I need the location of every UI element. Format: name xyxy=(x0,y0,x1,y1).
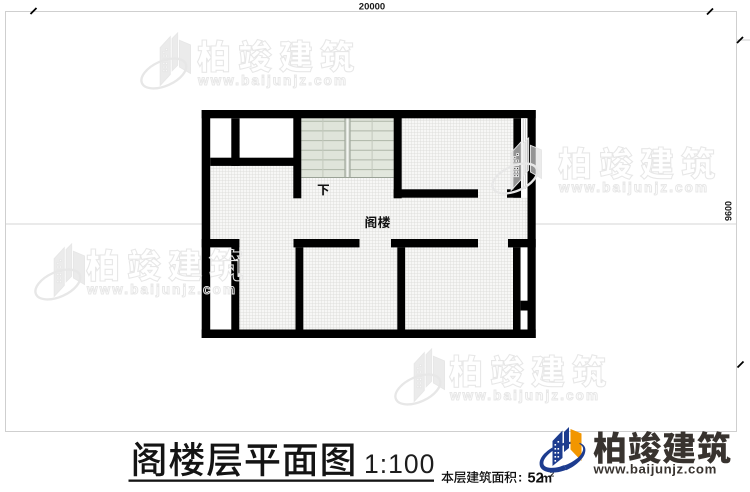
svg-text:www.baijunjz.com: www.baijunjz.com xyxy=(593,462,717,477)
svg-text:20000: 20000 xyxy=(359,2,385,13)
svg-text:1:100: 1:100 xyxy=(364,449,435,479)
svg-text::: : xyxy=(518,470,522,485)
svg-text:9600: 9600 xyxy=(724,201,734,221)
